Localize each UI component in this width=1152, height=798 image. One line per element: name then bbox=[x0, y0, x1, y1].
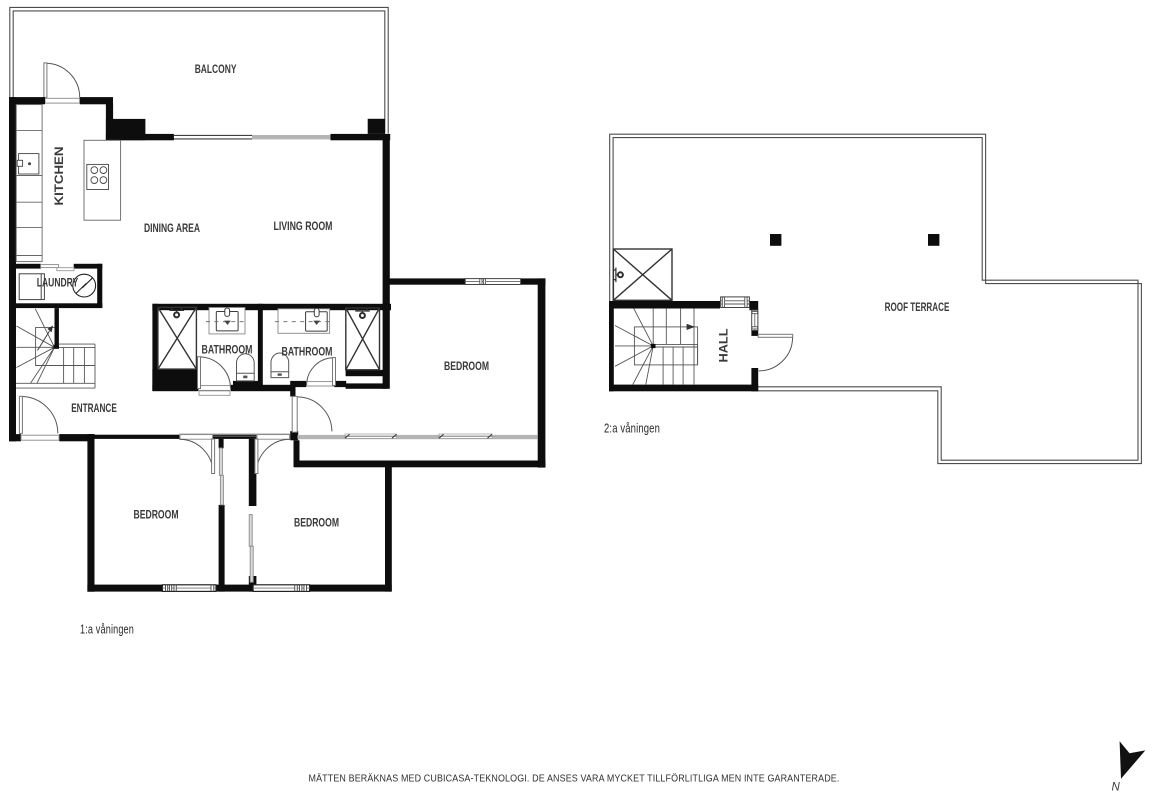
svg-text:BATHROOM: BATHROOM bbox=[282, 347, 333, 359]
svg-text:BEDROOM: BEDROOM bbox=[134, 510, 179, 522]
svg-text:LAUNDRY: LAUNDRY bbox=[37, 278, 79, 290]
svg-text:HALL: HALL bbox=[719, 329, 731, 363]
svg-text:BEDROOM: BEDROOM bbox=[444, 361, 489, 373]
svg-text:1:a våningen: 1:a våningen bbox=[80, 623, 134, 637]
svg-text:DINING AREA: DINING AREA bbox=[144, 223, 200, 235]
svg-text:ENTRANCE: ENTRANCE bbox=[71, 403, 117, 415]
svg-text:BEDROOM: BEDROOM bbox=[294, 518, 339, 530]
svg-text:ROOF TERRACE: ROOF TERRACE bbox=[885, 302, 950, 314]
svg-text:BATHROOM: BATHROOM bbox=[202, 345, 253, 357]
svg-text:KITCHEN: KITCHEN bbox=[54, 147, 66, 206]
svg-text:2:a våningen: 2:a våningen bbox=[604, 422, 660, 436]
svg-text:BALCONY: BALCONY bbox=[195, 64, 237, 76]
svg-text:LIVING ROOM: LIVING ROOM bbox=[274, 221, 333, 233]
svg-text:MÄTTEN BERÄKNAS MED CUBICASA-T: MÄTTEN BERÄKNAS MED CUBICASA-TEKNOLOGI. … bbox=[309, 774, 840, 785]
svg-text:N: N bbox=[1112, 782, 1121, 794]
